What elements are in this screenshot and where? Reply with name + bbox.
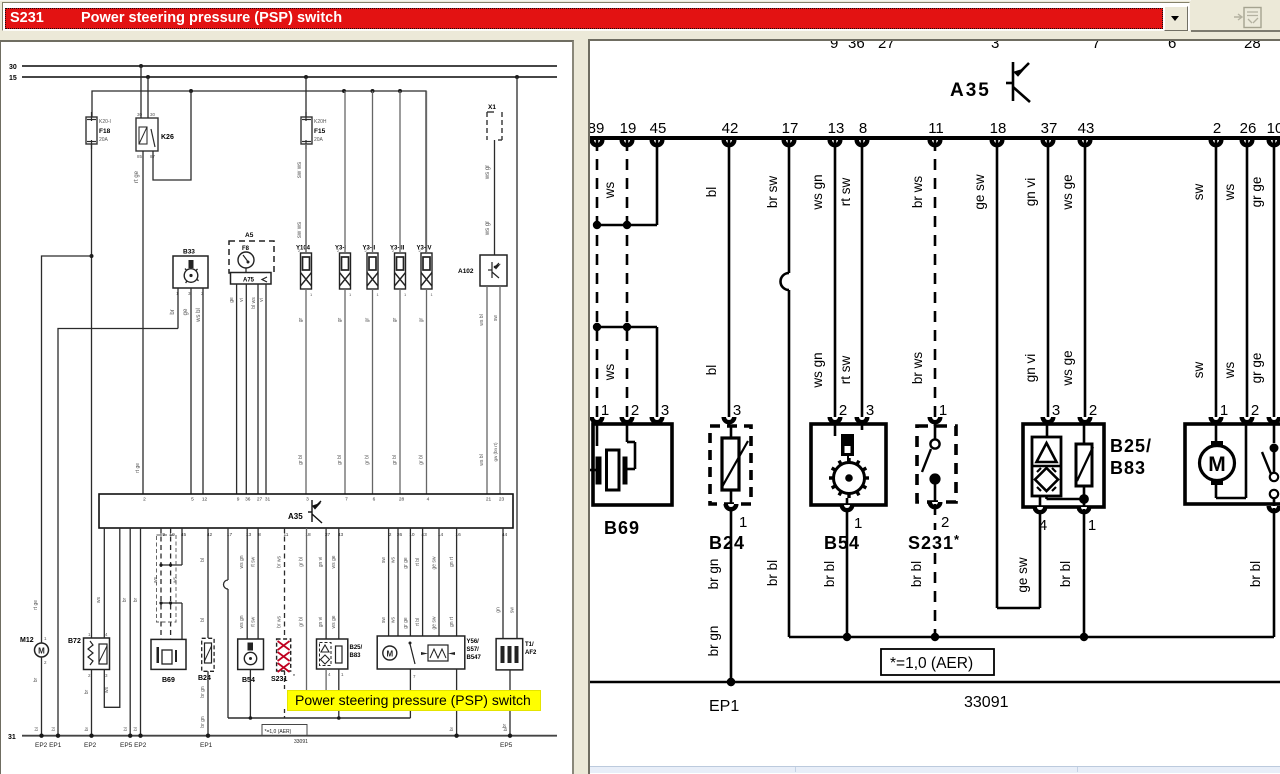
svg-text:8: 8 [859,120,867,137]
svg-text:gr bl: gr bl [392,455,398,465]
svg-text:sw ws: sw ws [297,222,303,238]
svg-text:br ws: br ws [910,176,925,209]
svg-text:2: 2 [1213,120,1221,137]
svg-text:rt bl: rt bl [415,618,421,626]
svg-text:4: 4 [328,672,331,677]
svg-text:gr bl: gr bl [299,557,305,567]
svg-text:*: * [293,674,295,680]
svg-text:rt sw: rt sw [838,178,853,207]
svg-text:ge sw: ge sw [432,616,438,629]
svg-text:M12: M12 [20,637,34,644]
svg-text:rt sw: rt sw [838,356,853,385]
svg-text:bl: bl [133,727,138,731]
svg-text:2: 2 [941,514,949,531]
svg-text:ws gr: ws gr [485,165,491,180]
svg-text:1: 1 [349,292,352,297]
svg-text:gr ge: gr ge [403,617,409,629]
svg-text:9: 9 [830,41,838,52]
svg-text:33091: 33091 [294,739,308,745]
svg-text:br: br [170,309,176,314]
svg-text:ge sw: ge sw [432,556,438,569]
svg-text:bl ws: bl ws [251,297,257,309]
svg-text:4: 4 [1039,517,1047,534]
svg-text:br ws: br ws [277,556,283,568]
svg-text:6: 6 [1168,41,1176,52]
svg-text:gn rt: gn rt [449,556,455,567]
svg-text:ws bl: ws bl [196,308,202,323]
svg-text:M: M [38,647,45,656]
svg-text:2: 2 [1251,402,1259,419]
svg-text:S231*: S231* [908,532,960,553]
svg-text:1: 1 [601,402,609,419]
svg-text:T1/: T1/ [525,642,534,648]
svg-text:ws: ws [391,556,397,563]
svg-text:42: 42 [722,120,739,137]
svg-text:A75: A75 [243,278,255,284]
svg-text:bl: bl [200,618,206,622]
svg-text:Y56/: Y56/ [467,639,480,645]
svg-text:bl: bl [34,727,39,731]
svg-text:26: 26 [1240,120,1257,137]
svg-text:ws ge: ws ge [1060,174,1075,210]
svg-text:13: 13 [828,120,845,137]
svg-text:gr bl: gr bl [298,455,304,465]
svg-text:gr bl: gr bl [299,617,305,627]
svg-text:B24: B24 [709,533,745,553]
svg-text:ws ge: ws ge [331,555,337,568]
svg-text:3: 3 [866,402,874,419]
svg-text:2: 2 [88,673,91,678]
svg-text:6: 6 [373,497,376,503]
svg-text:gr bl: gr bl [365,455,371,465]
svg-text:br: br [133,597,139,602]
svg-text:2: 2 [143,497,146,503]
svg-text:B69: B69 [162,677,175,684]
svg-text:F8: F8 [242,246,250,252]
svg-text:M: M [1208,453,1226,476]
svg-text:gr bl: gr bl [337,455,343,465]
svg-text:36: 36 [245,497,251,503]
svg-text:*=1,0 (AER): *=1,0 (AER) [265,729,292,735]
svg-text:3: 3 [661,402,669,419]
svg-text:5: 5 [191,497,194,503]
svg-text:gn vi: gn vi [318,617,324,628]
svg-text:18: 18 [990,120,1007,137]
svg-text:1: 1 [854,515,862,532]
svg-text:17: 17 [782,120,799,137]
svg-text:A5: A5 [245,232,254,239]
svg-text:ws gn: ws gn [239,615,245,628]
svg-text:br: br [122,597,128,602]
svg-text:br gn: br gn [706,626,721,657]
svg-text:ws: ws [96,596,102,603]
svg-text:bl: bl [51,727,56,731]
svg-text:11: 11 [928,120,944,137]
svg-text:br gn: br gn [200,716,206,728]
svg-text:br: br [84,689,90,694]
svg-text:EP1: EP1 [709,698,739,715]
svg-text:F18: F18 [99,128,111,135]
svg-text:M: M [386,650,393,659]
svg-text:31: 31 [265,497,271,503]
svg-text:rt bl: rt bl [415,558,421,566]
svg-text:gn vi: gn vi [1023,354,1038,383]
svg-text:1: 1 [341,672,344,677]
svg-text:28: 28 [399,497,405,503]
svg-text:X1: X1 [488,104,496,111]
svg-text:45: 45 [650,120,667,137]
svg-text:rt sw: rt sw [251,616,257,627]
svg-text:sw: sw [381,557,387,564]
svg-text:ws: ws [173,576,179,583]
svg-text:ws bl: ws bl [479,454,485,465]
svg-text:br bl: br bl [1058,561,1073,587]
svg-text:gn vi: gn vi [318,557,324,568]
svg-text:A35: A35 [288,512,303,521]
svg-text:B83: B83 [1110,458,1146,478]
svg-text:30: 30 [137,112,143,117]
svg-text:ge sw: ge sw [972,174,987,210]
svg-text:2: 2 [631,402,639,419]
svg-text:F15: F15 [314,128,326,135]
svg-text:4: 4 [105,632,108,637]
svg-text:br: br [449,727,454,732]
svg-text:S57/: S57/ [467,647,480,653]
svg-text:7: 7 [1092,41,1100,52]
svg-text:bl: bl [200,558,206,562]
svg-text:3: 3 [991,41,999,52]
svg-text:sw: sw [1191,362,1206,379]
svg-text:85: 85 [137,154,143,159]
svg-text:br bl: br bl [1248,561,1263,587]
svg-text:sw ws: sw ws [297,162,303,178]
svg-text:ge sw: ge sw [1015,557,1030,593]
svg-text:27: 27 [878,41,895,52]
svg-text:89: 89 [590,120,604,137]
svg-text:B25/: B25/ [350,645,363,651]
svg-text:B547: B547 [467,655,482,661]
svg-text:vi: vi [239,298,245,302]
svg-text:gr: gr [419,317,425,322]
svg-text:ge: ge [229,297,235,303]
svg-text:3: 3 [1052,402,1060,419]
svg-text:20A: 20A [99,137,109,143]
svg-text:EP2 EP1: EP2 EP1 [35,742,62,749]
svg-text:EP2: EP2 [84,742,97,749]
svg-text:7: 7 [413,674,416,679]
svg-text:ws gn: ws gn [810,174,825,210]
svg-text:rt ge: rt ge [135,463,141,473]
svg-text:3: 3 [105,673,108,678]
svg-text:37: 37 [1041,120,1058,137]
svg-text:1: 1 [739,514,747,531]
svg-text:43: 43 [1078,120,1095,137]
svg-text:gn: gn [496,607,502,613]
svg-text:10: 10 [1267,120,1280,137]
svg-text:ws: ws [1222,184,1237,202]
svg-text:sw: sw [510,607,516,614]
svg-text:br bl: br bl [909,561,924,587]
svg-text:A102: A102 [458,268,474,275]
svg-text:rt sw: rt sw [251,556,257,567]
svg-text:1: 1 [431,292,434,297]
svg-text:15: 15 [9,75,17,82]
svg-text:27: 27 [257,497,263,503]
svg-text:br bl: br bl [822,561,837,587]
svg-text:EP5 EP2: EP5 EP2 [120,742,147,749]
svg-text:B24: B24 [198,675,211,682]
svg-text:2: 2 [44,660,47,665]
svg-text:B54: B54 [824,533,860,553]
svg-text:30: 30 [150,112,156,117]
svg-text:K20H: K20H [314,119,327,125]
svg-text:gr ge: gr ge [403,557,409,569]
svg-text:br: br [84,727,89,732]
svg-text:br bl: br bl [765,560,780,586]
svg-text:1: 1 [939,402,947,419]
svg-text:2: 2 [1089,402,1097,419]
svg-text:36: 36 [848,41,865,52]
svg-text:br ws: br ws [910,352,925,385]
svg-text:gr ge: gr ge [1249,177,1264,208]
svg-text:AF2: AF2 [525,650,537,656]
svg-text:ws: ws [104,686,110,693]
svg-text:23: 23 [499,497,505,503]
svg-text:br gn: br gn [200,686,206,698]
svg-text:bl: bl [704,187,719,198]
svg-text:K20-I: K20-I [99,119,111,125]
svg-text:gr: gr [365,317,371,322]
svg-text:rt ge: rt ge [33,600,39,610]
svg-text:ws bl: ws bl [479,314,485,325]
svg-text:B69: B69 [604,518,640,538]
svg-text:bl: bl [123,727,128,731]
svg-text:2: 2 [839,402,847,419]
svg-text:vi: vi [259,298,265,302]
svg-text:br: br [503,727,508,732]
svg-text:ws: ws [602,364,617,382]
svg-text:B72: B72 [68,638,81,645]
svg-text:br: br [33,677,39,682]
svg-text:sw: sw [493,315,499,322]
svg-text:rt ge: rt ge [134,170,140,183]
svg-text:20A: 20A [314,137,324,143]
svg-text:ws: ws [1222,362,1237,380]
svg-text:EP1: EP1 [200,742,213,749]
svg-text:4: 4 [427,497,430,503]
svg-text:B25/: B25/ [1110,436,1152,456]
svg-text:ws: ws [602,182,617,200]
svg-text:ws ge: ws ge [331,615,337,628]
svg-text:*=1,0 (AER): *=1,0 (AER) [890,655,973,672]
svg-text:br ws: br ws [277,616,283,628]
svg-text:21: 21 [486,497,492,503]
svg-text:1: 1 [310,292,313,297]
svg-text:gw (bn rt): gw (bn rt) [493,442,498,462]
svg-text:ws ge: ws ge [1060,350,1075,386]
svg-text:br gn: br gn [706,559,721,590]
svg-text:sw: sw [1191,184,1206,201]
svg-text:ge: ge [183,308,189,315]
svg-text:B54: B54 [242,677,255,684]
svg-text:B83: B83 [350,653,362,659]
svg-text:31: 31 [8,734,16,741]
svg-text:gr bl: gr bl [419,455,425,465]
svg-text:1: 1 [1220,402,1228,419]
svg-text:EP5: EP5 [500,742,513,749]
svg-text:1: 1 [88,632,91,637]
svg-text:33091: 33091 [964,694,1009,711]
svg-text:bl: bl [704,365,719,376]
svg-text:9: 9 [237,497,240,503]
svg-text:12: 12 [202,497,208,503]
svg-text:3: 3 [306,497,309,503]
svg-text:br sw: br sw [765,176,780,209]
svg-text:ws gr: ws gr [485,221,491,236]
svg-text:1: 1 [1088,517,1096,534]
svg-text:ws: ws [391,616,397,623]
svg-text:ws gn: ws gn [810,352,825,388]
svg-text:1: 1 [404,292,407,297]
svg-text:A35: A35 [950,80,991,101]
svg-text:B33: B33 [183,249,195,256]
svg-text:gr: gr [392,317,398,322]
svg-text:19: 19 [620,120,637,137]
svg-text:gr: gr [298,317,304,322]
svg-text:ws: ws [153,576,159,583]
svg-text:3: 3 [733,402,741,419]
svg-text:30: 30 [9,64,17,71]
svg-text:sw: sw [381,617,387,624]
svg-text:K26: K26 [161,134,174,141]
svg-text:28: 28 [1244,41,1261,52]
svg-text:7: 7 [345,497,348,503]
svg-text:gn vi: gn vi [1023,178,1038,207]
svg-text:ws gn: ws gn [239,555,245,568]
svg-text:gr: gr [337,317,343,322]
svg-text:1: 1 [377,292,380,297]
svg-text:gn rt: gn rt [449,616,455,627]
svg-text:1: 1 [44,636,47,641]
svg-text:gr ge: gr ge [1249,353,1264,384]
